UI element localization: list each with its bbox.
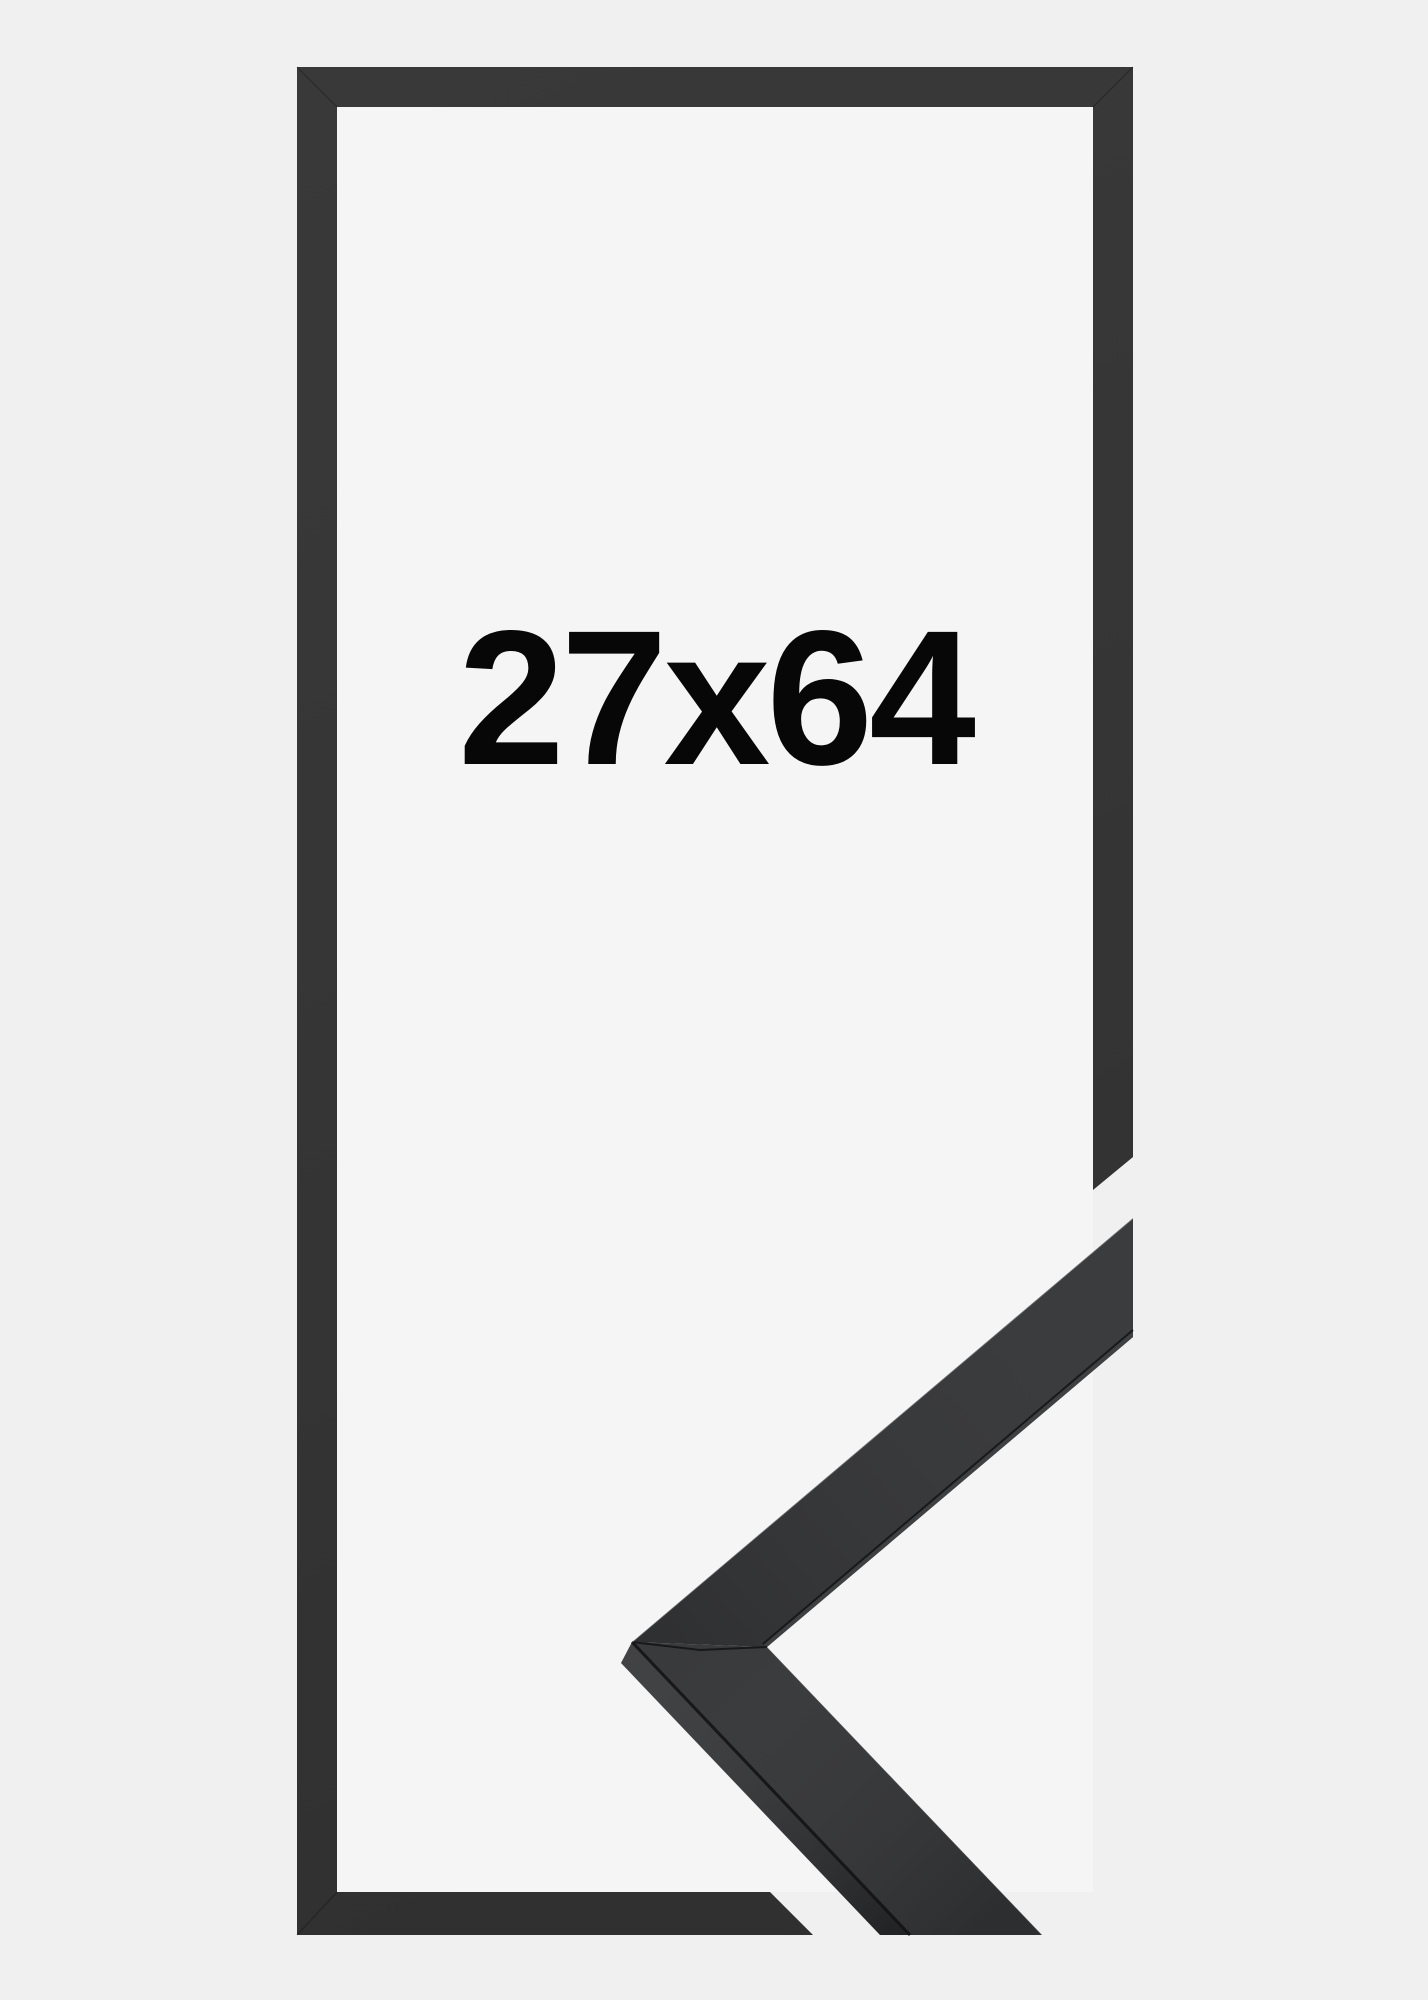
frame-graphic (0, 0, 1428, 2000)
product-image: 27x64 (0, 0, 1428, 2000)
size-label: 27x64 (337, 600, 1093, 796)
